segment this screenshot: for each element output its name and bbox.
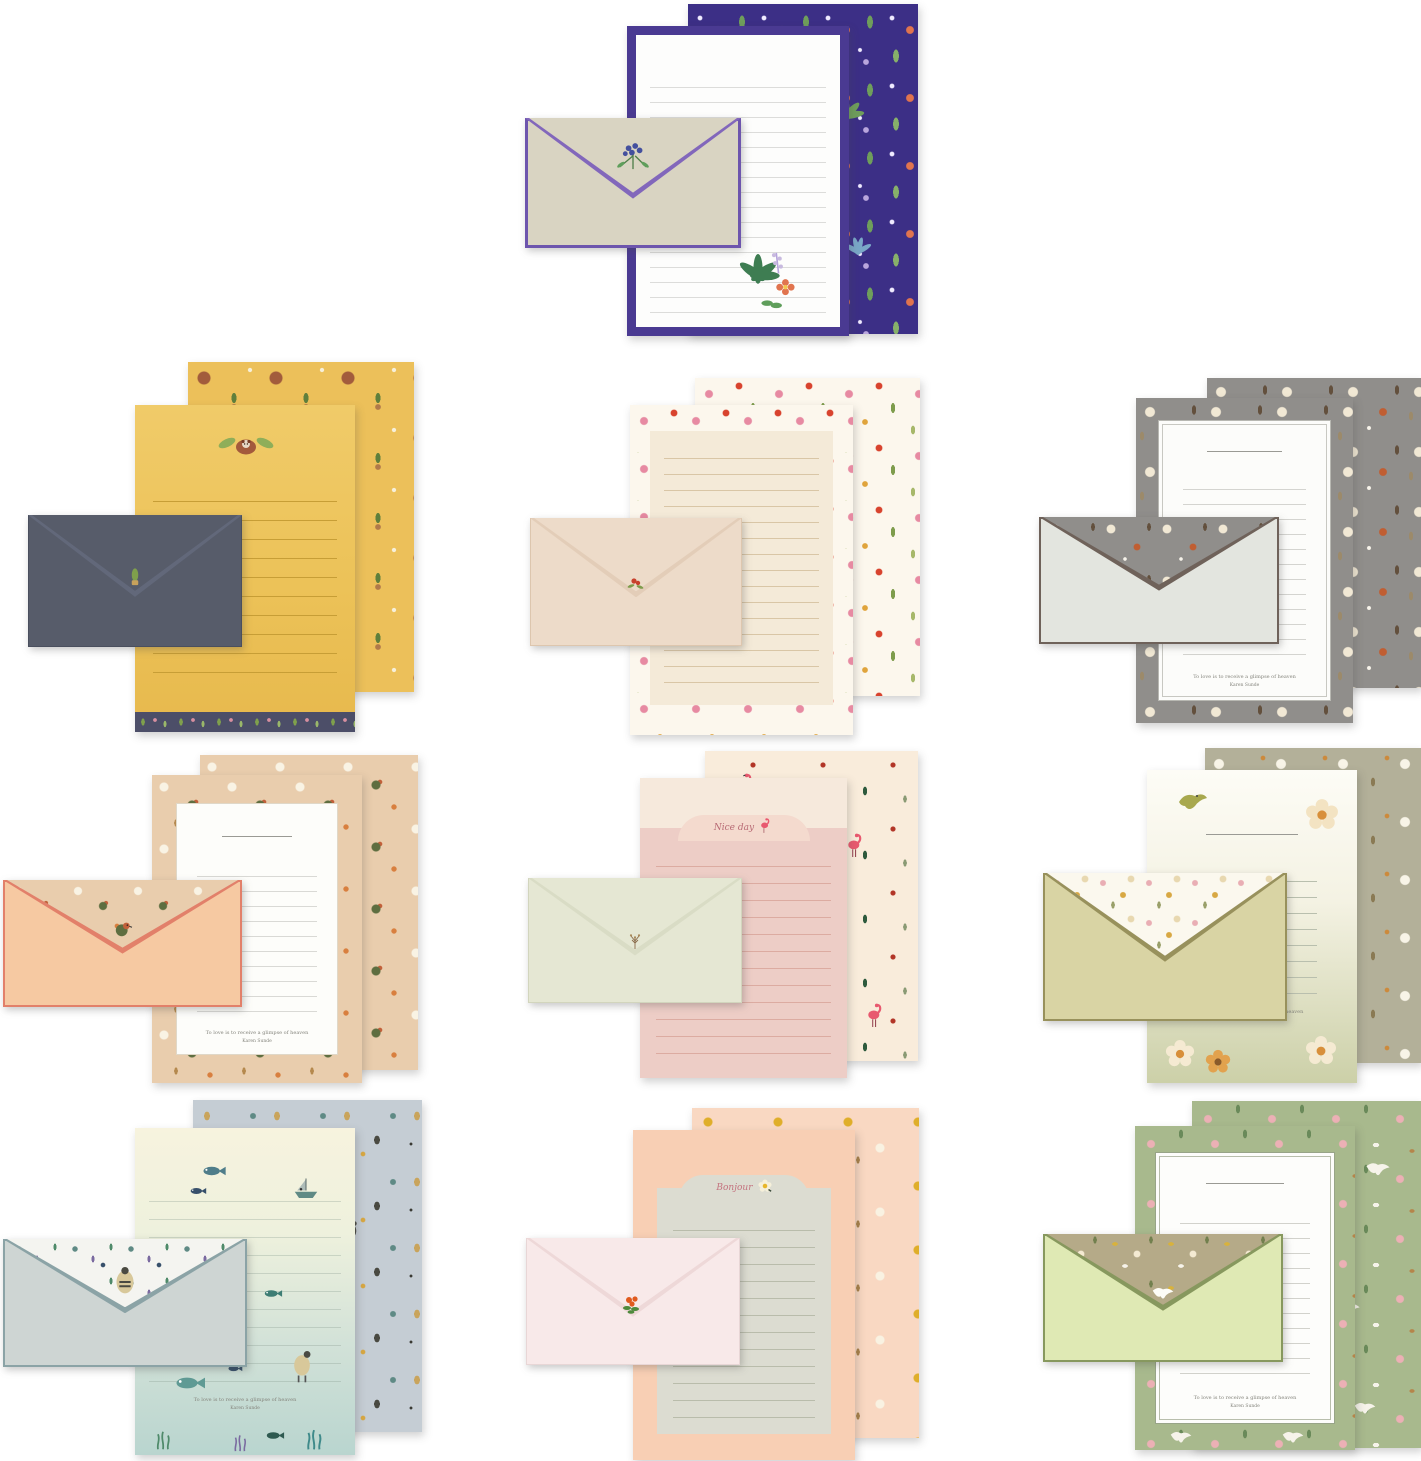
product-collage: To love is to receive a glimpse of heave… <box>0 0 1421 1461</box>
greeting-line <box>1206 1183 1284 1184</box>
white-bird-icon <box>1151 1286 1175 1302</box>
swallow-icon <box>1353 1401 1377 1417</box>
script-label: Bonjour <box>716 1183 752 1193</box>
flamingo-icon <box>759 817 773 835</box>
envelope-green <box>1043 1234 1283 1362</box>
header-tab: Bonjour <box>679 1175 809 1199</box>
stationery-set-green-swallows: To love is to receive a glimpse of heave… <box>0 0 1421 1461</box>
script-label: Nice day <box>714 823 754 833</box>
quote-text: To love is to receive a glimpse of heave… <box>1170 1394 1320 1411</box>
yellow-flower-icon <box>758 1179 772 1193</box>
swallow-icon <box>1281 1430 1305 1446</box>
swallow-icon <box>1169 1430 1193 1446</box>
header-tab: Nice day <box>678 815 810 841</box>
swallow-icon <box>1365 1161 1391 1179</box>
